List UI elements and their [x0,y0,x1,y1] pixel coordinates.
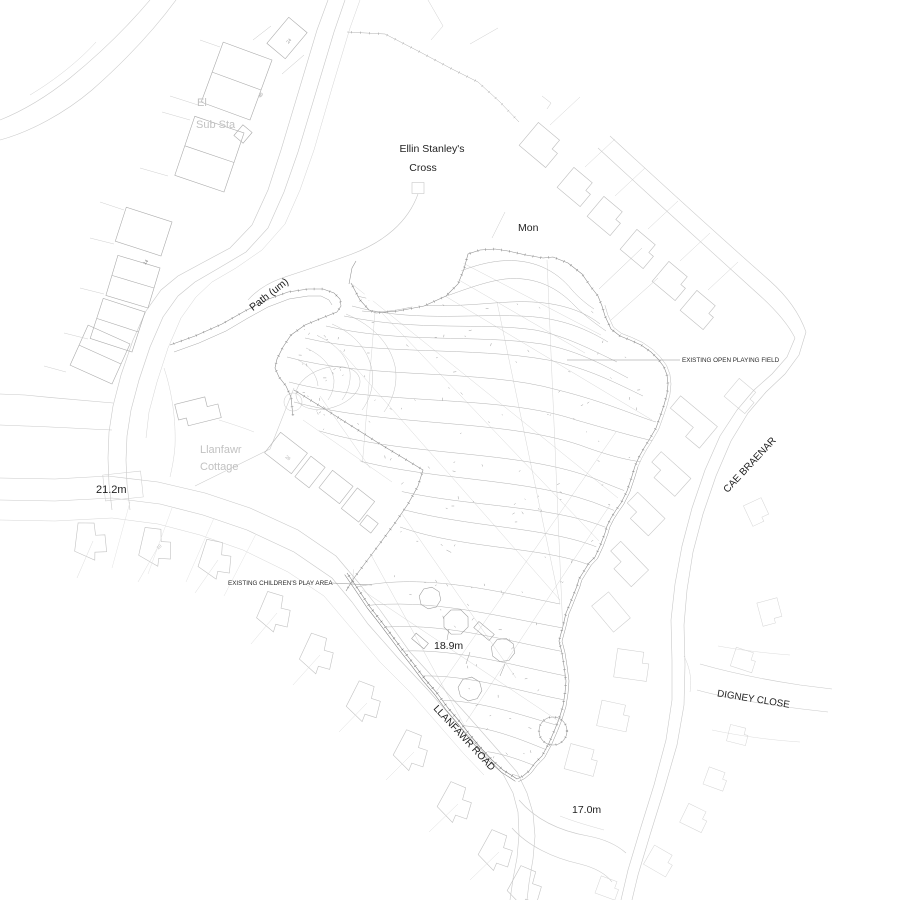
svg-text:EXISTING CHILDREN'S PLAY AREA: EXISTING CHILDREN'S PLAY AREA [228,580,333,587]
svg-text:Cross: Cross [409,162,436,174]
svg-text:El: El [197,97,207,109]
svg-text:Path (um): Path (um) [247,276,291,314]
svg-text:Llanfawr: Llanfawr [200,444,242,456]
svg-text:Ellin Stanley's: Ellin Stanley's [399,143,464,155]
svg-text:21.2m: 21.2m [96,484,127,496]
svg-text:17.0m: 17.0m [572,804,601,816]
svg-text:Sub Sta: Sub Sta [196,119,236,131]
svg-text:LLANFAWR ROAD: LLANFAWR ROAD [431,703,497,773]
svg-text:10: 10 [156,543,163,550]
svg-text:Mon: Mon [518,222,539,234]
svg-text:18.9m: 18.9m [434,640,463,652]
svg-text:DIGNEY CLOSE: DIGNEY CLOSE [716,688,791,710]
svg-text:CAE BRAENAR: CAE BRAENAR [722,435,779,495]
svg-text:24: 24 [285,37,292,44]
svg-text:EXISTING OPEN PLAYING FIELD: EXISTING OPEN PLAYING FIELD [682,357,780,364]
svg-text:40: 40 [257,91,264,98]
svg-text:26: 26 [284,454,291,461]
svg-text:Cottage: Cottage [200,461,239,473]
